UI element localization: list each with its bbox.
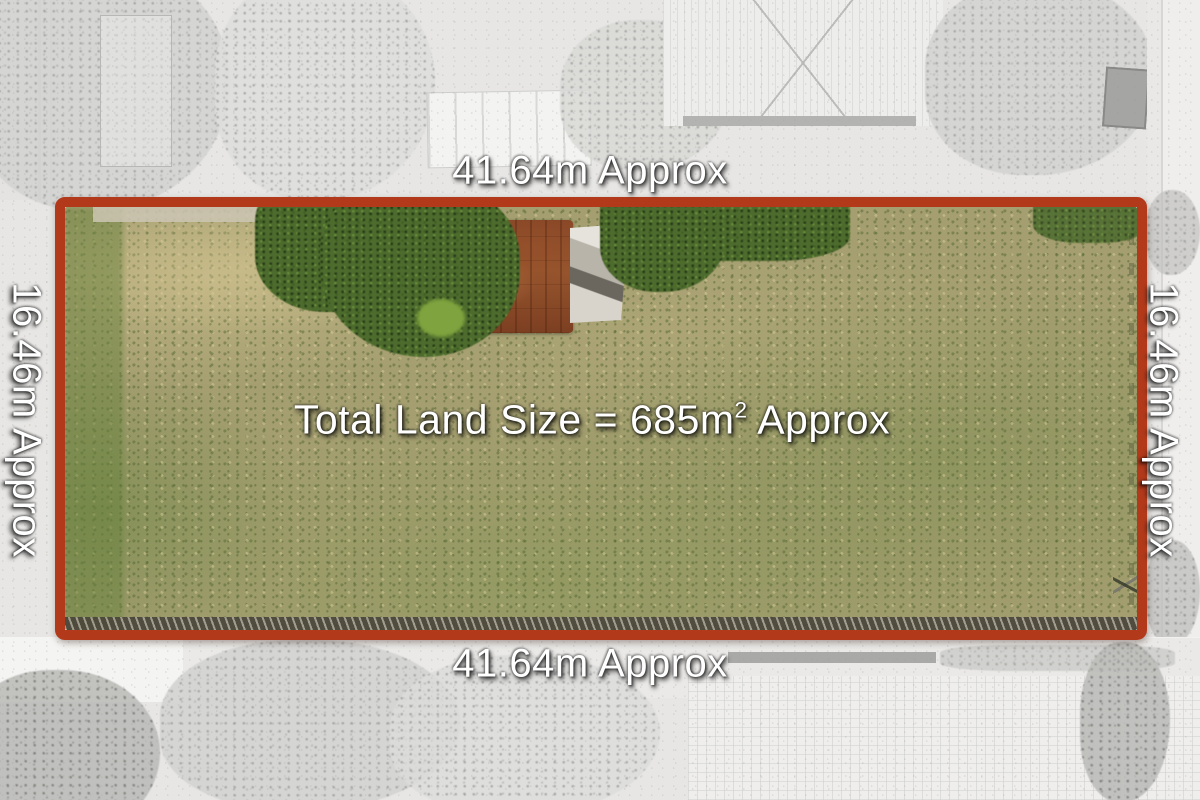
bright-shrub xyxy=(417,299,465,337)
hedge-top-right-patch xyxy=(1033,207,1137,243)
dimension-label-bottom: 41.64m Approx xyxy=(452,642,728,687)
area-label-superscript: 2 xyxy=(735,398,748,423)
fence-line-bottom xyxy=(65,617,1137,630)
hedge-strip-bottom-right xyxy=(940,645,1175,671)
shed-outline-faint xyxy=(100,15,172,167)
fence-line-right xyxy=(1129,215,1134,605)
area-label-suffix: Approx xyxy=(748,397,891,443)
trailer-top-right xyxy=(1102,67,1150,130)
dimension-label-left: 16.46m Approx xyxy=(4,282,49,558)
house-eave-shadow xyxy=(683,116,916,126)
tree-canopy-top-left-2 xyxy=(215,0,435,200)
dimension-label-right: 16.46m Approx xyxy=(1141,282,1186,558)
area-label: Total Land Size = 685m2 Approx xyxy=(294,397,890,444)
hedge-top-middle-2 xyxy=(600,207,725,292)
area-label-prefix: Total Land Size = 685m xyxy=(294,397,735,443)
hedge-top-left-2 xyxy=(320,207,520,357)
green-strip-left xyxy=(65,207,123,630)
retaining-wall-bottom xyxy=(728,652,936,663)
fallen-branch-x-mark xyxy=(1113,569,1137,601)
house-roof-top xyxy=(663,0,943,126)
aerial-land-photo: 41.64m Approx 41.64m Approx 16.46m Appro… xyxy=(0,0,1200,800)
dimension-label-top: 41.64m Approx xyxy=(452,149,728,194)
